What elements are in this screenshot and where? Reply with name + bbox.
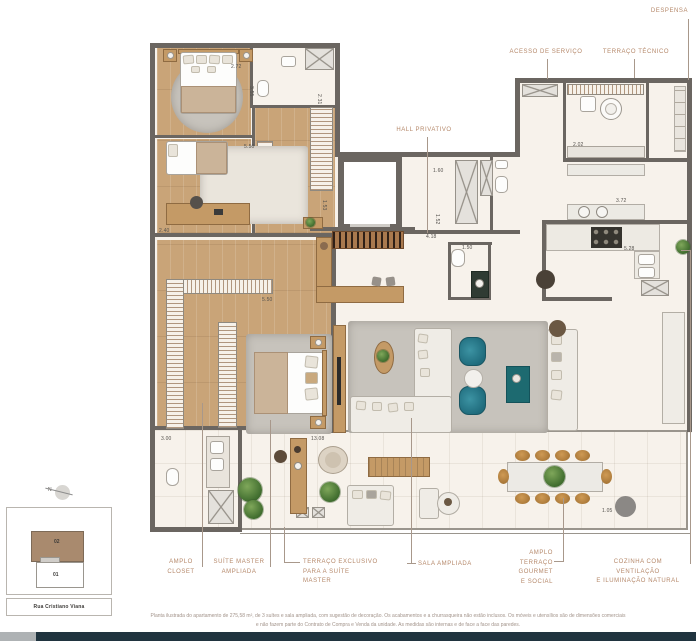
terrace-bar-kettle — [294, 446, 301, 453]
sofa-pillow — [404, 402, 414, 411]
leader-terraco-exclusivo-v — [284, 527, 285, 563]
suite2-lamp-left — [167, 52, 174, 59]
siteplan-unit01-shape — [36, 562, 84, 588]
terrace-plant-1 — [238, 478, 262, 502]
label-terraco-exclusivo: TERRAÇO EXCLUSIVO PARA A SUÍTE MASTER — [303, 558, 379, 587]
leader-sala-v — [411, 418, 412, 564]
suite3-desk — [166, 203, 250, 225]
sofa2-pillow — [551, 389, 563, 400]
coffee-table-tray — [512, 374, 521, 383]
label-amplo-terraco: AMPLO TERRAÇO GOURMET E SOCIAL — [495, 549, 553, 587]
wall-service-left — [515, 80, 520, 157]
wc-sink — [495, 160, 508, 169]
corridor-plant — [306, 218, 315, 227]
wall-acesso-terraco — [563, 80, 566, 160]
sofa-pillow — [420, 368, 430, 377]
dining-chair — [555, 450, 570, 461]
sofa-pillow — [387, 402, 398, 412]
terrace-sofa-pillow — [352, 490, 363, 499]
breakfast-table — [536, 270, 555, 289]
masterbath-sink-2 — [210, 458, 224, 471]
terrace-railing-outer — [240, 533, 690, 534]
sofa-pillow — [372, 402, 382, 411]
label-terraco-tecnico: TERRAÇO TÉCNICO — [596, 48, 676, 58]
suite2-pillow — [196, 55, 207, 64]
master-closet-island — [218, 322, 237, 428]
terrace-plant-2 — [244, 500, 263, 519]
leader-terraco-exclusivo-h — [284, 562, 300, 563]
dining-chair — [535, 493, 550, 504]
tech-terrace-louver — [567, 84, 644, 95]
label-despensa: DESPENSA — [614, 7, 688, 17]
master-closet-left — [166, 279, 184, 429]
disclaimer-line-1: Planta ilustrada do apartamento de 275,5… — [128, 612, 648, 621]
terrace-sofa-pillow — [380, 490, 392, 500]
master-lamp-top — [315, 339, 322, 346]
leader-despensa — [688, 19, 689, 80]
dining-chair-end — [601, 469, 612, 484]
master-blanket — [254, 352, 288, 414]
wc-toilet — [495, 176, 508, 193]
label-acesso-de-servico: ACESSO DE SERVIÇO — [502, 48, 590, 58]
terrace-railing-bottom — [240, 528, 688, 530]
dimension-label: 2.31 — [316, 94, 322, 105]
lavabo-basin — [475, 279, 484, 288]
dimension-label: 3.55 — [248, 86, 254, 97]
leader-terraco-tecnico — [634, 59, 635, 78]
dining-chair — [515, 450, 530, 461]
leader-hall — [427, 137, 428, 233]
corridor-wardrobe — [310, 107, 333, 191]
laundry-shelf — [567, 164, 645, 176]
terrace-railing-right — [686, 432, 688, 530]
wall-terraco-despensa — [646, 80, 649, 160]
living-round-table — [464, 369, 483, 388]
footer-bar-dark — [36, 632, 696, 641]
suite3-laptop — [214, 209, 223, 215]
wall-a-right — [335, 43, 340, 157]
teal-armchair-2 — [459, 386, 486, 415]
master-closet-top — [182, 279, 273, 294]
dimension-label: 1.52 — [434, 214, 440, 225]
dimension-label: 3.72 — [616, 198, 627, 204]
label-suite-master: SUÍTE MASTER AMPLIADA — [212, 558, 266, 577]
dining-chair — [535, 450, 550, 461]
sofa2-pillow — [551, 352, 562, 362]
terrace-lounge-chair — [419, 488, 439, 519]
label-cozinha: COZINHA COM VENTILAÇÃO E ILUMINAÇÃO NATU… — [594, 558, 682, 587]
wine-rack — [332, 231, 404, 249]
suite2-pillow — [209, 55, 221, 65]
dining-chair — [575, 450, 590, 461]
wall-bath-bottom — [150, 527, 242, 532]
cooktop — [591, 227, 622, 248]
living-table-plant — [377, 350, 389, 362]
tv — [337, 357, 341, 405]
sofa-pillow — [356, 401, 367, 411]
kitchen-plant — [676, 240, 690, 254]
leader-sala-h — [407, 563, 416, 564]
bar-stool-1 — [371, 276, 381, 286]
terrace-bar-sink — [294, 462, 302, 470]
elevator-shaft-2 — [480, 160, 493, 196]
suite3-blanket — [196, 142, 227, 174]
kitchen-sink-1 — [638, 254, 655, 265]
leader-cozinha-h — [681, 250, 690, 251]
dimension-label: 3.00 — [161, 436, 172, 442]
leader-amplo-closet — [202, 403, 203, 567]
bar-coffee-machine — [320, 242, 328, 250]
terrace-plant-3 — [320, 482, 340, 502]
dining-sideboard — [662, 312, 685, 424]
tech-tank — [580, 96, 596, 112]
label-sala-ampliada: SALA AMPLIADA — [418, 560, 478, 570]
suite2-pillow — [222, 55, 233, 64]
wall-blocka-bottom — [150, 233, 340, 237]
dimension-label: 5.50 — [262, 297, 273, 303]
living-side-table-dark — [549, 320, 566, 337]
terrace-drain-2 — [312, 507, 325, 518]
kitchen-shaft — [641, 280, 669, 296]
master-headboard — [322, 350, 327, 416]
wall-lavabo-left — [448, 242, 451, 300]
suite2-lamp-right — [243, 52, 250, 59]
dimension-label: 1.60 — [433, 168, 444, 174]
suite3-chair — [190, 196, 203, 209]
masterbath-sink-1 — [210, 441, 224, 454]
teal-coffee-table — [506, 366, 530, 403]
dimension-label: 5.28 — [624, 246, 635, 252]
suite2-pillow — [207, 66, 216, 73]
suite3-pillow — [168, 144, 178, 157]
masterbath-toilet — [166, 468, 179, 486]
dining-chair-end — [498, 469, 509, 484]
disclaimer: Planta ilustrada do apartamento de 275,5… — [128, 612, 648, 629]
dimension-label: 13.08 — [311, 436, 325, 442]
terrace-column — [615, 496, 636, 517]
wall-bedroom-divider — [155, 135, 253, 138]
dining-chair — [515, 493, 530, 504]
dimension-label: 2.02 — [573, 142, 584, 148]
dimension-label: 2.40 — [159, 228, 170, 234]
dimension-label: 2.72 — [231, 64, 242, 70]
washer — [578, 206, 590, 218]
leader-amplo-terraco-h — [554, 561, 564, 562]
sofa-pillow — [417, 333, 428, 343]
shower-suite2 — [305, 48, 334, 70]
sofa-pillow — [418, 350, 429, 360]
leader-cozinha-v — [690, 250, 691, 564]
dimension-label: 5.50 — [244, 144, 255, 150]
disclaimer-line-2: e não fazem parte do Contrato de Compra … — [128, 621, 648, 630]
wall-kitchen-bottom — [542, 297, 612, 301]
wall-service-top — [563, 158, 692, 162]
terrace-sofa-pillow — [366, 490, 377, 499]
terrace-stool — [274, 450, 287, 463]
wall-top-right — [515, 78, 692, 83]
master-lamp-bottom — [315, 419, 322, 426]
sofa2-pillow — [551, 370, 562, 380]
dimension-label: 1.50 — [462, 245, 473, 251]
bath1-toilet — [257, 80, 269, 97]
elevator-cab — [344, 162, 396, 224]
master-pillow — [304, 387, 318, 400]
bath1-sink — [281, 56, 296, 67]
kitchen-sink-2 — [638, 267, 655, 278]
terrace-side-table-item — [444, 498, 452, 506]
suite2-pillow — [191, 66, 200, 73]
elevator-shaft-1 — [455, 160, 478, 224]
wall-left — [150, 43, 155, 532]
dining-centerpiece — [544, 466, 565, 487]
bar-counter-horizontal — [316, 286, 404, 303]
terrace-slat-table — [368, 457, 430, 477]
siteplan-unit01-label: 01 — [53, 572, 59, 578]
footer-bar-light — [0, 632, 36, 641]
label-amplo-closet: AMPLO CLOSET — [160, 558, 202, 577]
suite2-blanket — [181, 86, 236, 113]
leader-amplo-terraco-v — [563, 498, 564, 562]
dimension-label: 4.18 — [426, 234, 437, 240]
dimension-label: 1.05 — [602, 508, 613, 514]
service-entry-mat — [522, 84, 558, 97]
label-hall-privativo: HALL PRIVATIVO — [392, 126, 456, 136]
dining-chair — [575, 493, 590, 504]
bar-stool-2 — [385, 276, 395, 286]
shower-master — [208, 490, 234, 524]
street-label: Rua Cristiano Viana — [6, 604, 112, 610]
water-heater-inner — [605, 103, 617, 115]
floorplan-page: { "callouts": { "despensa": "DESPENSA", … — [0, 0, 696, 641]
suite2-pillow — [183, 55, 195, 65]
master-pillow — [305, 372, 318, 384]
leader-acesso — [547, 59, 548, 79]
master-pillow — [304, 355, 318, 368]
terrace-round-lounge-cushion — [325, 452, 341, 468]
leader-suite-master — [270, 420, 271, 567]
teal-armchair-1 — [459, 337, 486, 366]
lavabo-toilet — [451, 249, 465, 267]
siteplan-unit02-label: 02 — [54, 539, 60, 545]
pantry-shelf — [674, 86, 686, 152]
dimension-label: 1.53 — [321, 200, 327, 211]
dryer — [596, 206, 608, 218]
